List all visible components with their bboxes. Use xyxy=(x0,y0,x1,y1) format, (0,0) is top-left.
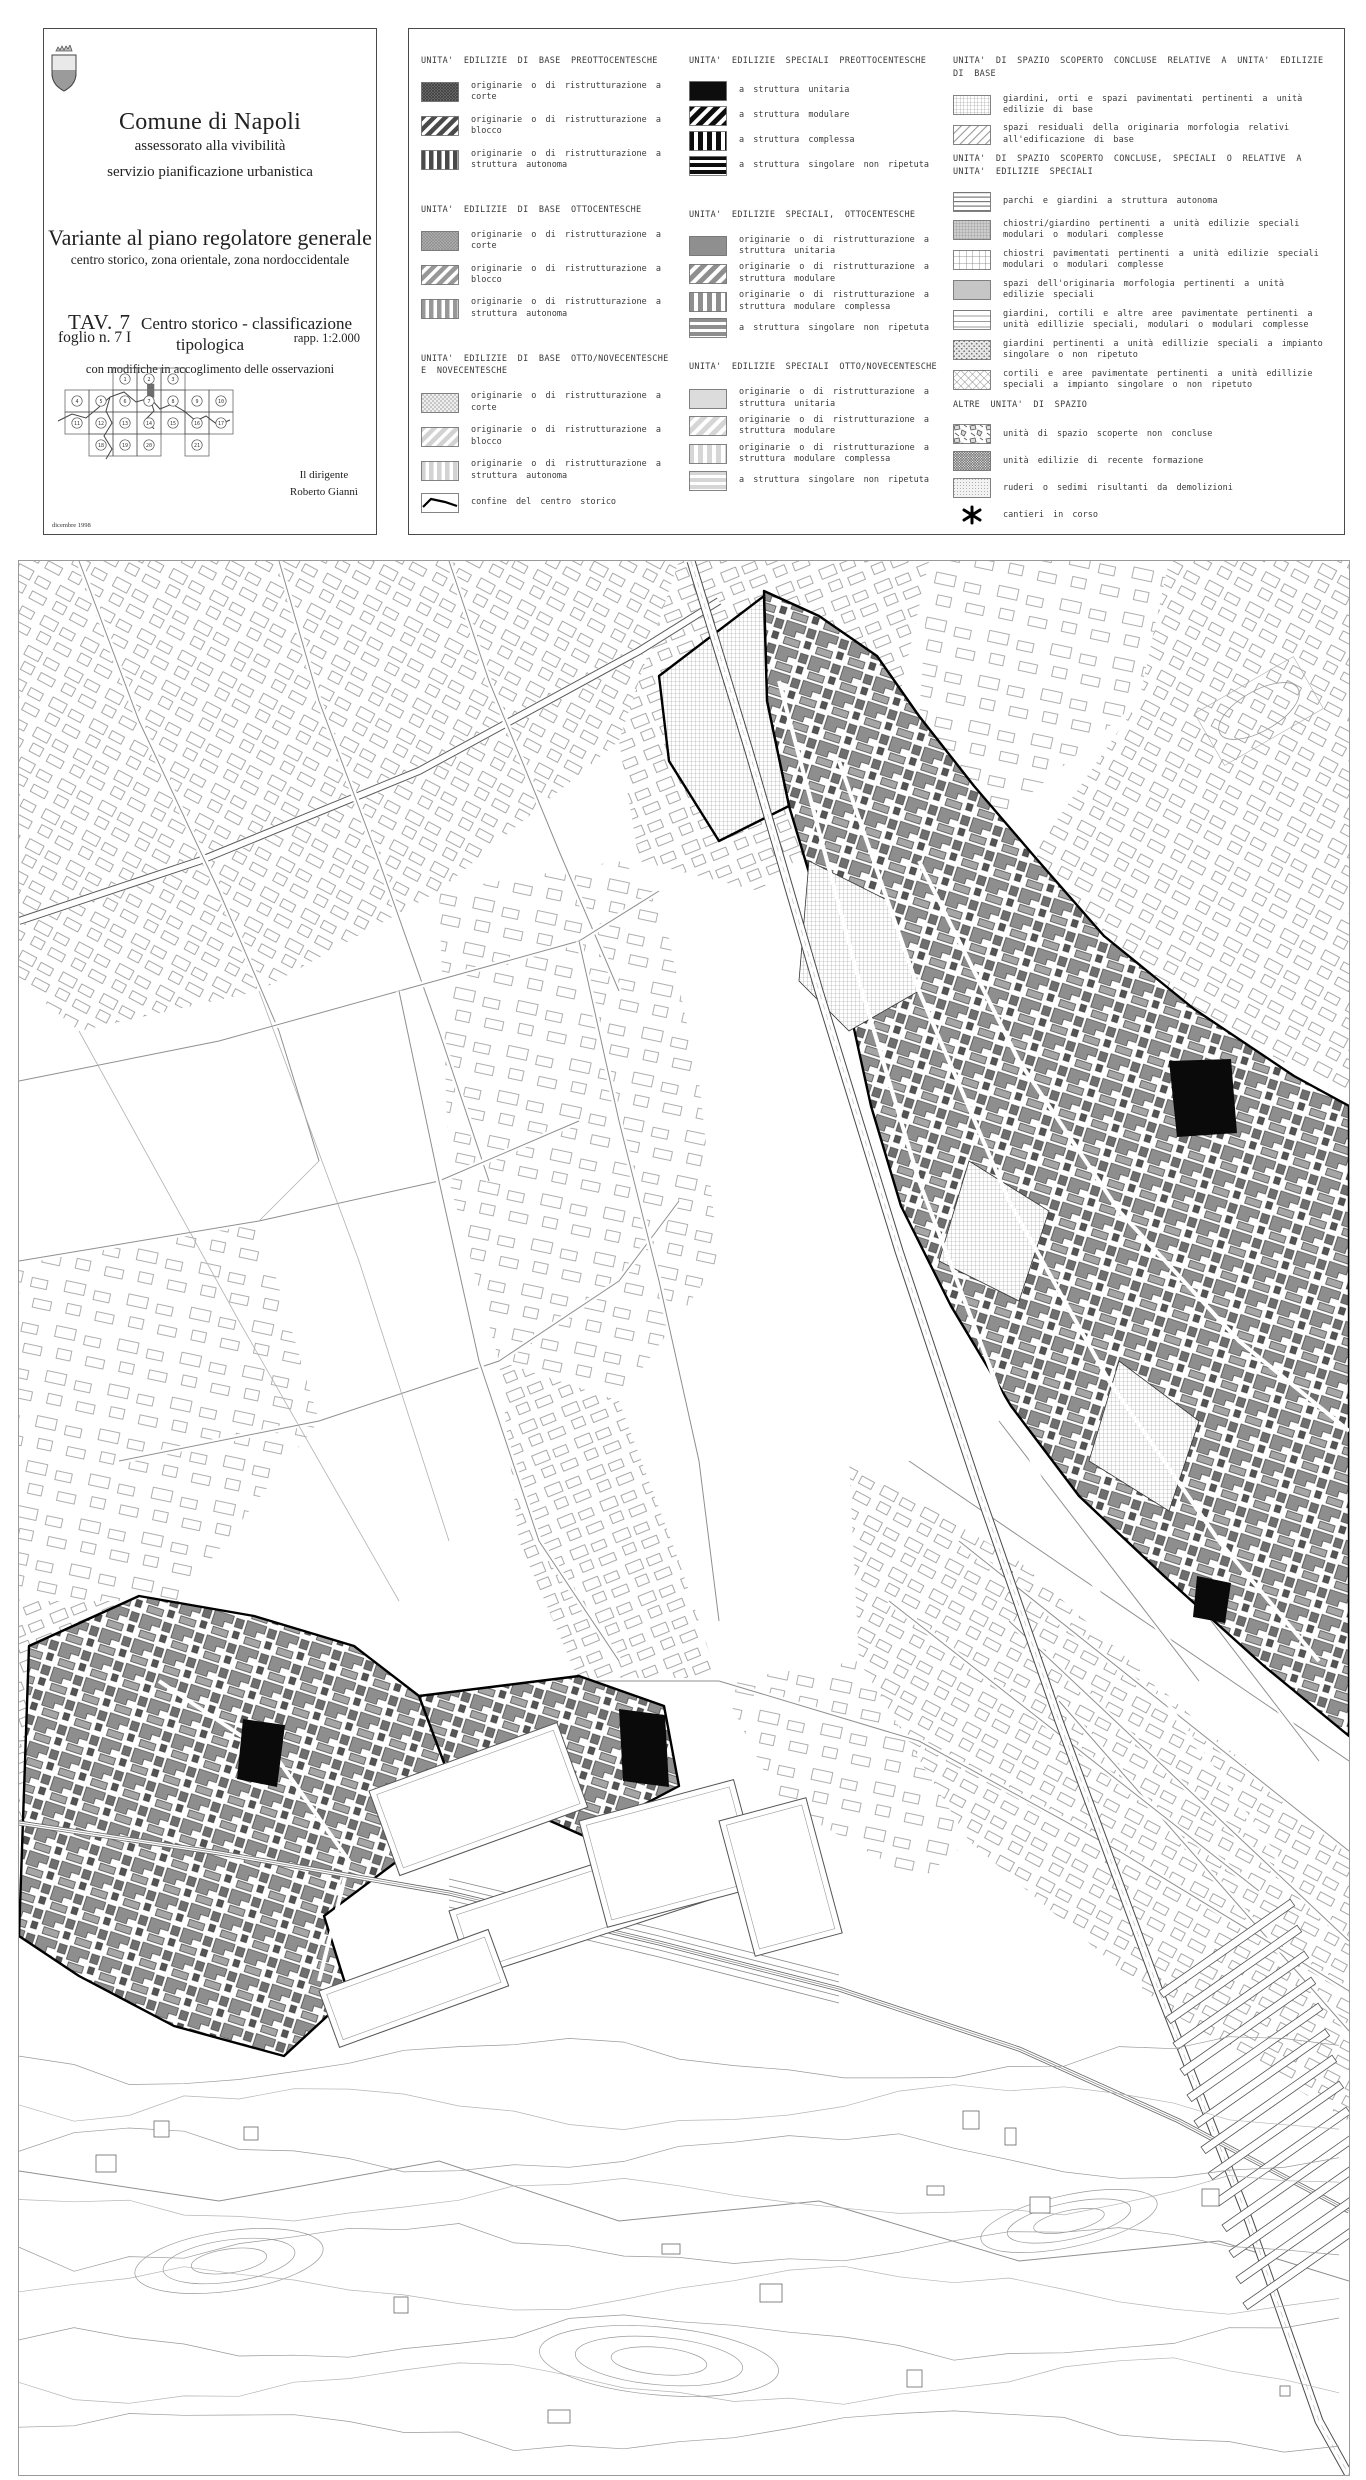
legend-swatch-complessa-pre xyxy=(689,131,727,151)
index-cell-number: 13 xyxy=(122,421,128,427)
legend-item: ruderi o sedimi risultanti da demolizion… xyxy=(953,478,1334,498)
legend-swatch-unitaria-otto xyxy=(689,236,727,256)
index-cell-number: 9 xyxy=(195,399,198,405)
legend-group-title: UNITA' EDILIZIE DI BASE OTTOCENTESCHE xyxy=(421,204,673,217)
legend-item: originarie o di ristrutturazione a strut… xyxy=(689,415,937,438)
index-cell-number: 11 xyxy=(74,421,80,427)
legend-item: originarie o di ristrutturazione a strut… xyxy=(689,235,937,258)
legend-group: UNITA' EDILIZIE SPECIALI, OTTOCENTESCHEo… xyxy=(689,209,937,344)
legend-item-label: spazi dell'originaria morfologia pertine… xyxy=(1003,279,1334,302)
city-plan-map xyxy=(19,561,1349,2475)
legend-item: originarie o di ristrutturazione a strut… xyxy=(689,387,937,410)
legend-item: originarie o di ristrutturazione a strut… xyxy=(689,443,937,466)
legend-item: giardini, cortili e altre aree pavimenta… xyxy=(953,309,1334,332)
index-cell-number: 1 xyxy=(123,377,126,383)
legend-item-label: a struttura modulare xyxy=(739,110,849,121)
legend-item-label: originarie o di ristrutturazione a blocc… xyxy=(471,264,673,287)
legend-group-title: UNITA' EDILIZIE SPECIALI, OTTOCENTESCHE xyxy=(689,209,937,222)
legend-group-title: UNITA' EDILIZIE DI BASE OTTO/NOVECENTESC… xyxy=(421,353,673,379)
legend-swatch-autonoma-pre xyxy=(421,150,459,170)
legend-item-label: originarie o di ristrutturazione a blocc… xyxy=(471,425,673,448)
legend-item-label: originarie o di ristrutturazione a blocc… xyxy=(471,115,673,138)
legend-item-label: originarie o di ristrutturazione a strut… xyxy=(739,235,937,258)
legend-swatch-modcompl-otto xyxy=(689,292,727,312)
legend-item-label: originarie o di ristrutturazione a strut… xyxy=(471,149,673,172)
legend-item-label: giardini, orti e spazi pavimentati perti… xyxy=(1003,94,1334,117)
legend-item-label: originarie o di ristrutturazione a strut… xyxy=(739,415,937,438)
legend-item: originarie o di ristrutturazione a strut… xyxy=(421,459,673,482)
index-cell-number: 7 xyxy=(147,399,150,405)
index-cell-number: 15 xyxy=(170,421,176,427)
legend-item-label: cantieri in corso xyxy=(1003,510,1098,521)
legend-spacer xyxy=(689,181,937,209)
index-cell-number: 19 xyxy=(122,443,128,449)
legend-swatch-singolare-otto xyxy=(689,318,727,338)
legend-column-special-units: UNITA' EDILIZIE SPECIALI PREOTTOCENTESCH… xyxy=(689,55,937,524)
index-cell-number: 3 xyxy=(171,377,174,383)
legend-swatch-corte-nove xyxy=(421,393,459,413)
map-sheet-frame xyxy=(18,560,1350,2476)
legend-group-title: ALTRE UNITA' DI SPAZIO xyxy=(953,399,1334,412)
legend-item: giardini, orti e spazi pavimentati perti… xyxy=(953,94,1334,117)
signature-name: Roberto Giannì xyxy=(290,484,358,501)
signature-block: Il dirigente Roberto Giannì xyxy=(290,467,358,501)
legend-group: UNITA' EDILIZIE SPECIALI OTTO/NOVECENTES… xyxy=(689,361,937,496)
legend-swatch-modcompl-nove xyxy=(689,444,727,464)
legend-item: spazi dell'originaria morfologia pertine… xyxy=(953,279,1334,302)
legend-swatch-modulare-otto xyxy=(689,264,727,284)
index-cell-number: 17 xyxy=(218,421,224,427)
signature-role: Il dirigente xyxy=(290,467,358,484)
authority-title: Comune di Napoli xyxy=(44,109,376,136)
legend-swatch-nonconcluse xyxy=(953,424,991,444)
legend-item-label: originarie o di ristrutturazione a strut… xyxy=(739,262,937,285)
legend-swatch-parchi xyxy=(953,192,991,212)
plan-subtitle: centro storico, zona orientale, zona nor… xyxy=(44,252,376,268)
legend-item: originarie o di ristrutturazione a corte xyxy=(421,391,673,414)
legend-group-title: UNITA' EDILIZIE DI BASE PREOTTOCENTESCHE xyxy=(421,55,673,68)
index-cell-number: 18 xyxy=(98,443,104,449)
legend-item: originarie o di ristrutturazione a strut… xyxy=(689,290,937,313)
index-cell-number: 12 xyxy=(98,421,104,427)
legend-swatch-giardini-base xyxy=(953,95,991,115)
legend-item-label: cortili e aree pavimentate pertinenti a … xyxy=(1003,369,1334,392)
legend-swatch-corte-otto xyxy=(421,231,459,251)
index-cell-number: 2 xyxy=(147,377,150,383)
index-cell-number: 16 xyxy=(194,421,200,427)
legend-item-label: originarie o di ristrutturazione a strut… xyxy=(739,290,937,313)
legend-item-label: unità edilizie di recente formazione xyxy=(1003,456,1203,467)
legend-swatch-singolare-nove xyxy=(689,471,727,491)
legend-swatch-residuali xyxy=(953,125,991,145)
legend-item-label: originarie o di ristrutturazione a corte xyxy=(471,230,673,253)
legend-item-label: originarie o di ristrutturazione a strut… xyxy=(739,443,937,466)
legend-item-label: giardini, cortili e altre aree pavimenta… xyxy=(1003,309,1334,332)
department-line: assessorato alla vivibilità xyxy=(44,138,376,155)
legend-swatch-confine xyxy=(421,493,459,513)
crest-crown xyxy=(56,45,72,51)
legend-item: a struttura unitaria xyxy=(689,81,937,101)
legend-item: originarie o di ristrutturazione a strut… xyxy=(421,297,673,320)
legend-item-label: giardini pertinenti a unità edillizie sp… xyxy=(1003,339,1334,362)
legend-item: cantieri in corso xyxy=(953,505,1334,525)
legend-swatch-modulare-pre xyxy=(689,106,727,126)
legend-item-label: originarie o di ristrutturazione a corte xyxy=(471,81,673,104)
legend-group-title: UNITA' DI SPAZIO SCOPERTO CONCLUSE, SPEC… xyxy=(953,153,1334,179)
legend-item: unità edilizie di recente formazione xyxy=(953,451,1334,471)
legend-group: UNITA' EDILIZIE DI BASE OTTO/NOVECENTESC… xyxy=(421,353,673,493)
legend-item-label: unità di spazio scoperte non concluse xyxy=(1003,429,1212,440)
legend-swatch-ruderi xyxy=(953,478,991,498)
legend-group-title: UNITA' EDILIZIE SPECIALI PREOTTOCENTESCH… xyxy=(689,55,937,68)
legend-item-label: a struttura complessa xyxy=(739,135,854,146)
legend-group: UNITA' DI SPAZIO SCOPERTO CONCLUSE RELAT… xyxy=(953,55,1334,153)
legend-spacer xyxy=(421,183,673,204)
folio-row: foglio n. 7 I rapp. 1:2.000 xyxy=(58,329,360,347)
legend-spacer xyxy=(689,343,937,361)
legend-item-label: a struttura unitaria xyxy=(739,85,849,96)
legend-group: UNITA' DI SPAZIO SCOPERTO CONCLUSE, SPEC… xyxy=(953,153,1334,398)
legend-swatch-blocco-otto xyxy=(421,265,459,285)
legend-swatch-giardini-sing xyxy=(953,340,991,360)
index-cell-number: 8 xyxy=(171,399,174,405)
legend-item: originarie o di ristrutturazione a blocc… xyxy=(421,115,673,138)
sheet-index-map: 123456789101112131415161718192021 xyxy=(54,359,246,471)
legend-group-title: UNITA' EDILIZIE SPECIALI OTTO/NOVECENTES… xyxy=(689,361,937,374)
index-cell-number: 20 xyxy=(146,443,152,449)
legend-item-label: originarie o di ristrutturazione a strut… xyxy=(471,459,673,482)
index-cell-number: 21 xyxy=(194,443,200,449)
legend-swatch-chiostri-pav xyxy=(953,250,991,270)
legend-item-label: spazi residuali della originaria morfolo… xyxy=(1003,123,1334,146)
legend-item: originarie o di ristrutturazione a corte xyxy=(421,230,673,253)
legend-item-label: originarie o di ristrutturazione a strut… xyxy=(471,297,673,320)
legend-item-label: chiostri/giardino pertinenti a unità edi… xyxy=(1003,219,1334,242)
legend-column-open-space-units: UNITA' DI SPAZIO SCOPERTO CONCLUSE RELAT… xyxy=(953,55,1334,524)
legend-swatch-modulare-nove xyxy=(689,416,727,436)
scale-label: rapp. 1:2.000 xyxy=(294,331,360,346)
legend-swatch-singolare-pre xyxy=(689,156,727,176)
legend-swatch-morfologia xyxy=(953,280,991,300)
legend-item-label: originarie o di ristrutturazione a corte xyxy=(471,391,673,414)
plan-title: Variante al piano regolatore generale xyxy=(44,225,376,251)
legend-swatch-cortili-pav xyxy=(953,310,991,330)
legend-item: originarie o di ristrutturazione a blocc… xyxy=(421,264,673,287)
legend-swatch-corte-pre xyxy=(421,82,459,102)
index-cell-number: 6 xyxy=(123,399,126,405)
legend-item: chiostri pavimentati pertinenti a unità … xyxy=(953,249,1334,272)
legend-item: unità di spazio scoperte non concluse xyxy=(953,424,1334,444)
legend-item: originarie o di ristrutturazione a strut… xyxy=(421,149,673,172)
legend-swatch-recente xyxy=(953,451,991,471)
legend-swatch-autonoma-otto xyxy=(421,299,459,319)
legend-item-label: a struttura singolare non ripetuta xyxy=(739,475,929,486)
legend-item-label: confine del centro storico xyxy=(471,497,616,508)
legend-item: a struttura singolare non ripetuta xyxy=(689,471,937,491)
legend-swatch-cortili-sing xyxy=(953,370,991,390)
legend-swatch-blocco-pre xyxy=(421,116,459,136)
legend-item: a struttura singolare non ripetuta xyxy=(689,318,937,338)
legend-item: originarie o di ristrutturazione a strut… xyxy=(689,262,937,285)
legend-item: spazi residuali della originaria morfolo… xyxy=(953,123,1334,146)
legend-swatch-blocco-nove xyxy=(421,427,459,447)
terrain-contours-layer xyxy=(19,2037,1339,2452)
legend-swatch-cantieri xyxy=(953,505,991,525)
legend-group: UNITA' EDILIZIE DI BASE OTTOCENTESCHEori… xyxy=(421,204,673,332)
legend-spacer xyxy=(421,331,673,352)
legend-item: a struttura singolare non ripetuta xyxy=(689,156,937,176)
legend-swatch-autonoma-nove xyxy=(421,461,459,481)
plan-sheet-page: { "title_block": { "authority": "Comune … xyxy=(0,0,1366,2480)
legend-item: a struttura modulare xyxy=(689,106,937,126)
legend-item-label: a struttura singolare non ripetuta xyxy=(739,160,929,171)
index-cell-number: 14 xyxy=(146,421,152,427)
legend-group: ALTRE UNITA' DI SPAZIOunità di spazio sc… xyxy=(953,399,1334,533)
legend-item-label: chiostri pavimentati pertinenti a unità … xyxy=(1003,249,1334,272)
legend-item: giardini pertinenti a unità edillizie sp… xyxy=(953,339,1334,362)
legend-item: cortili e aree pavimentate pertinenti a … xyxy=(953,369,1334,392)
legend-item: originarie o di ristrutturazione a blocc… xyxy=(421,425,673,448)
legend-item-label: a struttura singolare non ripetuta xyxy=(739,323,929,334)
legend-group: UNITA' EDILIZIE DI BASE PREOTTOCENTESCHE… xyxy=(421,55,673,183)
legend-swatch-unitaria-pre xyxy=(689,81,727,101)
index-cell-number: 10 xyxy=(218,399,224,405)
office-line: servizio pianificazione urbanistica xyxy=(44,164,376,181)
legend-group: UNITA' EDILIZIE SPECIALI PREOTTOCENTESCH… xyxy=(689,55,937,181)
legend-item: parchi e giardini a struttura autonoma xyxy=(953,192,1334,212)
legend-item-label: ruderi o sedimi risultanti da demolizion… xyxy=(1003,483,1233,494)
legend-panel: UNITA' EDILIZIE DI BASE PREOTTOCENTESCHE… xyxy=(408,28,1345,535)
legend-item: a struttura complessa xyxy=(689,131,937,151)
legend-column-base-units: UNITA' EDILIZIE DI BASE PREOTTOCENTESCHE… xyxy=(421,55,673,524)
legend-item-label: originarie o di ristrutturazione a strut… xyxy=(739,387,937,410)
index-cell-number: 4 xyxy=(75,399,78,405)
legend-item-label: parchi e giardini a struttura autonoma xyxy=(1003,196,1217,207)
legend-item: confine del centro storico xyxy=(421,493,673,513)
date-label: dicembre 1998 xyxy=(52,522,91,529)
napoli-crest xyxy=(44,45,376,101)
legend-item: originarie o di ristrutturazione a corte xyxy=(421,81,673,104)
legend-swatch-chiostri-giard xyxy=(953,220,991,240)
index-cell-number: 5 xyxy=(99,399,102,405)
legend-group-title: UNITA' DI SPAZIO SCOPERTO CONCLUSE RELAT… xyxy=(953,55,1334,81)
title-block-panel: Comune di Napoli assessorato alla vivibi… xyxy=(43,28,377,535)
legend-swatch-unitaria-nove xyxy=(689,389,727,409)
folio-number: foglio n. 7 I xyxy=(58,329,131,347)
legend-item: chiostri/giardino pertinenti a unità edi… xyxy=(953,219,1334,242)
